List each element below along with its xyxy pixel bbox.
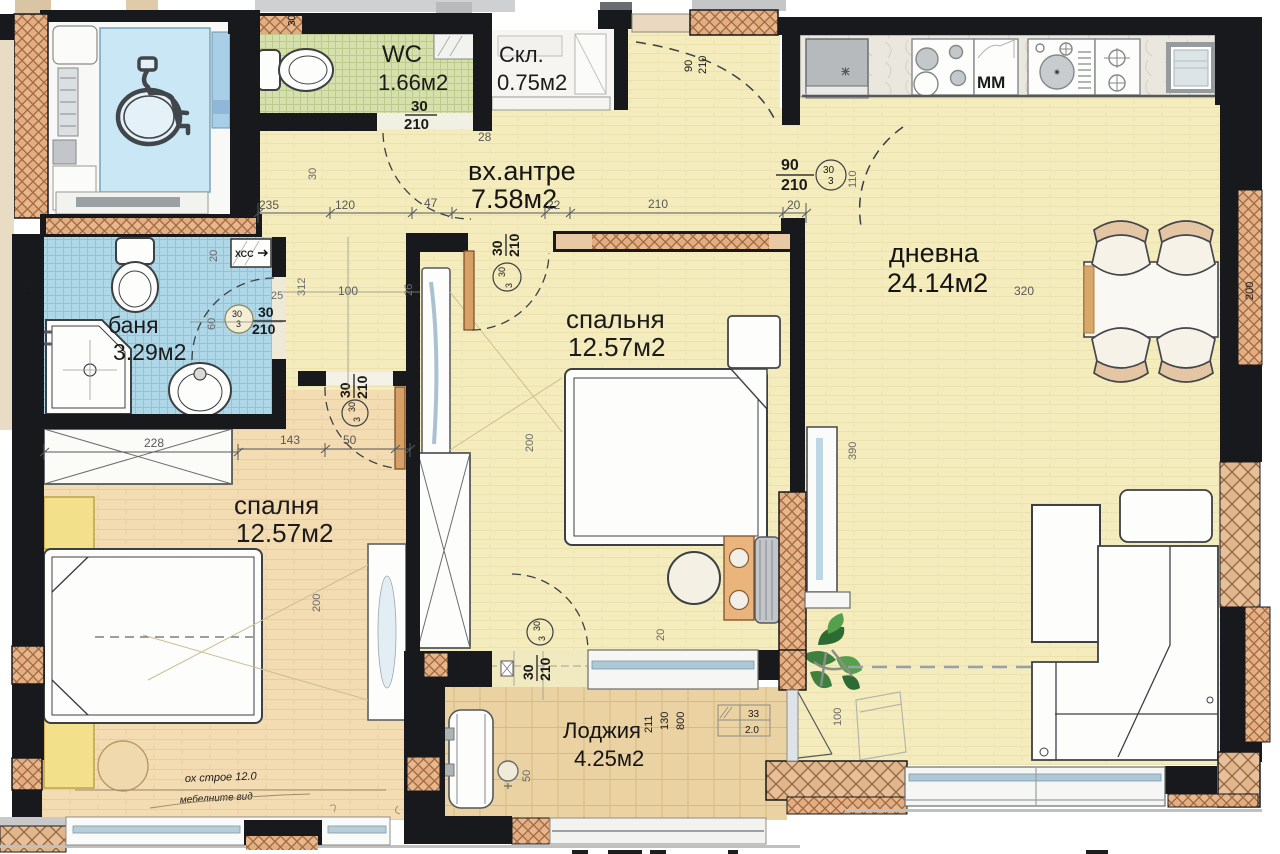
svg-text:ХСС: ХСС xyxy=(235,249,254,259)
svg-text:3: 3 xyxy=(828,176,834,187)
svg-text:200: 200 xyxy=(524,434,536,452)
svg-text:120: 120 xyxy=(335,198,355,212)
svg-text:210: 210 xyxy=(404,116,429,133)
svg-text:баня: баня xyxy=(108,312,159,338)
svg-text:211: 211 xyxy=(643,715,655,733)
svg-text:33: 33 xyxy=(748,709,760,720)
svg-text:12.57м2: 12.57м2 xyxy=(568,332,665,362)
svg-text:210: 210 xyxy=(506,233,522,257)
svg-text:30: 30 xyxy=(823,165,835,176)
svg-text:50: 50 xyxy=(521,770,533,782)
svg-text:390: 390 xyxy=(847,442,859,460)
svg-text:210: 210 xyxy=(781,177,808,194)
svg-text:30: 30 xyxy=(347,402,357,412)
svg-text:200: 200 xyxy=(1244,282,1256,300)
svg-text:22: 22 xyxy=(547,198,561,212)
svg-text:30: 30 xyxy=(232,309,242,319)
svg-text:WC: WC xyxy=(382,41,422,68)
svg-text:130: 130 xyxy=(659,712,671,730)
svg-text:20: 20 xyxy=(787,198,801,212)
svg-text:20: 20 xyxy=(208,250,220,262)
svg-text:дневна: дневна xyxy=(889,238,980,268)
svg-text:143: 143 xyxy=(280,433,300,447)
svg-text:210: 210 xyxy=(23,282,35,300)
svg-text:60: 60 xyxy=(206,318,218,330)
svg-text:MM: MM xyxy=(977,73,1005,92)
svg-text:30: 30 xyxy=(287,14,298,26)
svg-text:210: 210 xyxy=(648,197,668,211)
svg-text:235: 235 xyxy=(259,198,279,212)
svg-text:312: 312 xyxy=(296,278,308,296)
svg-text:320: 320 xyxy=(1014,284,1034,298)
svg-text:3.29м2: 3.29м2 xyxy=(113,339,186,365)
svg-text:228: 228 xyxy=(144,436,164,450)
svg-text:30: 30 xyxy=(411,98,428,115)
svg-text:30: 30 xyxy=(258,304,274,320)
svg-text:24.14м2: 24.14м2 xyxy=(887,268,988,298)
svg-text:30: 30 xyxy=(520,664,536,680)
svg-text:4.25м2: 4.25м2 xyxy=(574,746,644,771)
svg-text:370: 370 xyxy=(793,283,804,300)
svg-text:0.75м2: 0.75м2 xyxy=(497,70,567,95)
svg-text:спальня: спальня xyxy=(566,304,665,334)
svg-text:30: 30 xyxy=(497,267,507,277)
svg-text:30: 30 xyxy=(532,621,542,631)
svg-text:Скл.: Скл. xyxy=(499,42,544,67)
svg-text:28: 28 xyxy=(478,130,492,144)
svg-text:25: 25 xyxy=(271,290,283,302)
svg-text:90: 90 xyxy=(781,157,799,174)
svg-text:100: 100 xyxy=(832,708,844,726)
svg-text:210: 210 xyxy=(697,56,709,74)
svg-text:210: 210 xyxy=(537,657,553,681)
svg-text:7.58м2: 7.58м2 xyxy=(471,184,557,214)
svg-text:Лоджия: Лоджия xyxy=(563,718,641,743)
svg-text:30: 30 xyxy=(489,240,505,256)
svg-text:ох строе 12.0: ох строе 12.0 xyxy=(185,770,258,785)
svg-text:1.66м2: 1.66м2 xyxy=(378,70,448,95)
svg-text:210: 210 xyxy=(354,375,370,399)
svg-text:30: 30 xyxy=(307,168,319,180)
svg-text:47: 47 xyxy=(424,196,438,210)
svg-text:спалня: спалня xyxy=(234,490,319,520)
svg-text:30: 30 xyxy=(337,382,353,398)
svg-text:3: 3 xyxy=(236,319,241,329)
svg-text:110: 110 xyxy=(847,170,859,188)
svg-text:вх.антре: вх.антре xyxy=(468,156,576,186)
svg-text:3: 3 xyxy=(504,283,514,288)
svg-text:2.0: 2.0 xyxy=(745,725,759,736)
svg-text:3: 3 xyxy=(352,417,362,422)
svg-text:90: 90 xyxy=(683,60,695,72)
svg-text:210: 210 xyxy=(252,321,276,337)
svg-text:12.57м2: 12.57м2 xyxy=(236,518,333,548)
svg-text:26: 26 xyxy=(403,284,415,296)
svg-text:20: 20 xyxy=(655,629,667,641)
svg-text:800: 800 xyxy=(675,712,687,730)
svg-text:3: 3 xyxy=(537,636,547,641)
svg-text:50: 50 xyxy=(343,433,357,447)
svg-text:200: 200 xyxy=(311,594,323,612)
